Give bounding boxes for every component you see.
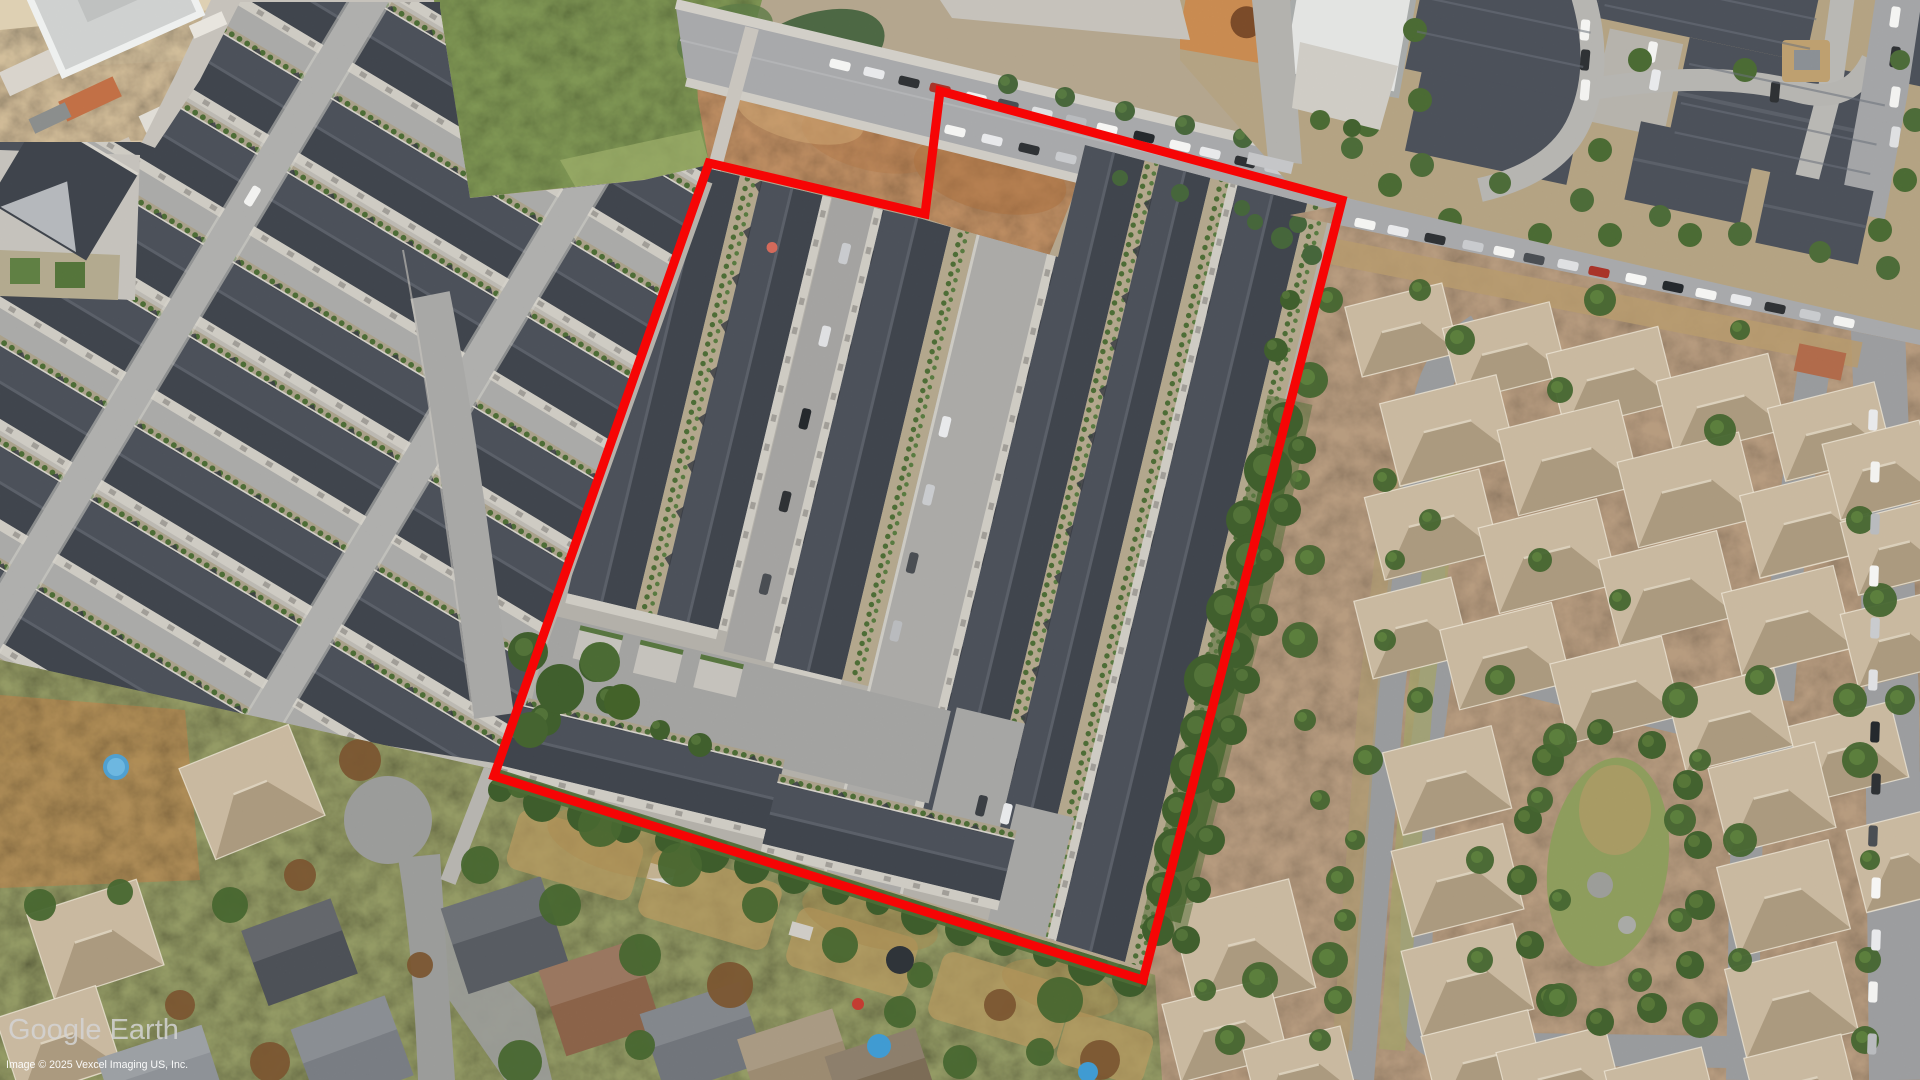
svg-text:Image © 2025 Vexcel Imaging US: Image © 2025 Vexcel Imaging US, Inc. (6, 1059, 188, 1071)
svg-text:Google Earth: Google Earth (8, 1014, 179, 1046)
